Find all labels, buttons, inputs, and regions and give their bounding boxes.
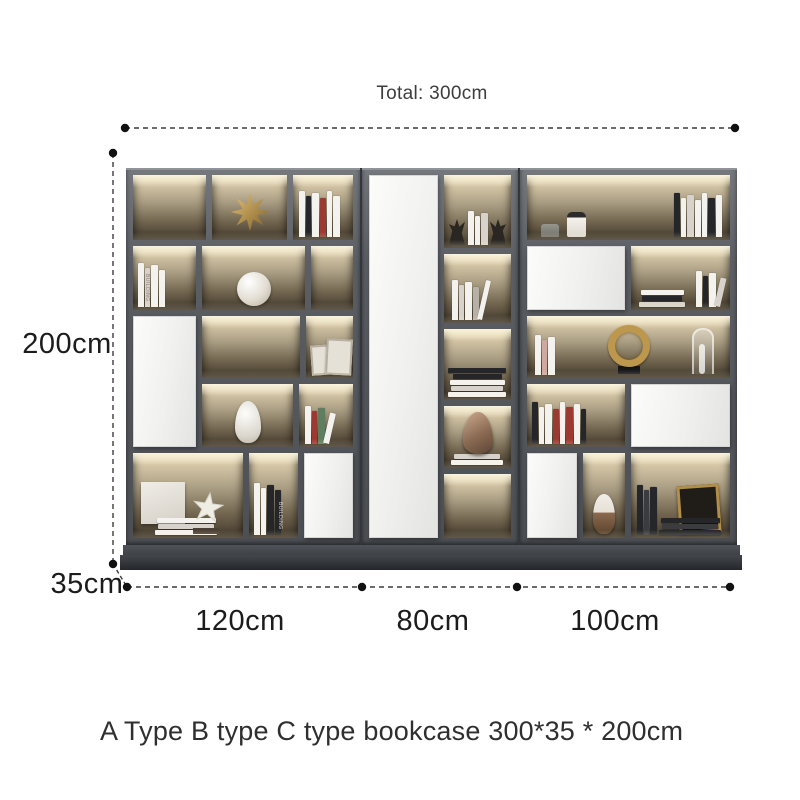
shelf-cell-books — [444, 254, 511, 323]
books — [637, 485, 657, 535]
shelf-cell-starfish — [133, 453, 243, 538]
section-b-width-label: 80cm — [358, 605, 508, 638]
shelf-cell-book-stack — [444, 329, 511, 400]
shelf-cell-ornament — [212, 175, 287, 240]
book-stack — [448, 367, 506, 397]
total-width-label: Total: 300cm — [332, 83, 532, 105]
books — [468, 211, 488, 245]
books — [674, 193, 722, 237]
gold-knot-ornament — [608, 325, 650, 367]
shelf-cell-vase — [202, 384, 293, 447]
shelf-cell-books — [299, 384, 353, 447]
ornament-base — [618, 366, 640, 374]
shelf-cell-books — [527, 384, 625, 447]
height-label: 200cm — [20, 328, 114, 361]
gold-star-ornament-icon — [225, 187, 275, 237]
bookcase: BUILDING — [126, 168, 737, 545]
shelf-cell-books: BUILDING — [249, 453, 298, 538]
shelf-cell-ornaments — [527, 316, 730, 378]
shelf-cell-frames — [306, 316, 353, 378]
brown-vase — [463, 412, 493, 454]
starfish-ornament-icon — [185, 486, 231, 532]
shelf-cell-ornament — [202, 246, 305, 310]
white-vase — [235, 401, 261, 443]
shelf-cell-empty — [133, 175, 206, 240]
gray-jar — [541, 224, 559, 237]
shelf-cell-books — [293, 175, 353, 240]
bookcase-section-c — [520, 168, 737, 545]
section-a-width-label: 120cm — [165, 605, 315, 638]
book-stack — [659, 517, 721, 535]
antler-bookend — [490, 219, 506, 245]
shelf-cell-empty — [444, 474, 511, 538]
books — [299, 191, 340, 237]
books — [138, 263, 165, 307]
glass-dome-ornament — [692, 328, 714, 374]
bookcase-base — [123, 545, 740, 555]
shelf-cell-books-frame — [631, 453, 730, 538]
cabinet-door — [631, 384, 730, 447]
white-canister — [567, 212, 586, 237]
section-c-width-label: 100cm — [540, 605, 690, 638]
depth-label: 35cm — [40, 568, 134, 601]
shelf-cell-jars-books — [527, 175, 730, 240]
antler-bookend — [449, 219, 465, 245]
coral-ball-ornament — [237, 272, 271, 306]
two-tone-vase — [593, 494, 615, 534]
bookcase-baseboard — [120, 555, 742, 570]
books — [452, 280, 482, 320]
book-stack — [639, 289, 685, 307]
cabinet-door — [133, 316, 196, 447]
books — [535, 335, 555, 375]
cabinet-door — [527, 246, 625, 310]
bookcase-dimension-diagram: Total: 300cm 200cm 35cm 120cm 80cm 100cm… — [0, 0, 800, 800]
books — [305, 406, 329, 444]
shelf-cell-books: BUILDING — [133, 246, 196, 310]
shelf-cell-vase — [444, 406, 511, 468]
bookcase-section-b — [362, 168, 518, 545]
shelf-cell-empty — [202, 316, 300, 378]
cabinet-door — [527, 453, 577, 538]
book-spine-text: BUILDING — [277, 502, 283, 530]
picture-frame — [325, 338, 353, 375]
book-stack — [451, 453, 503, 465]
tall-cabinet-door — [369, 175, 438, 538]
product-caption: A Type B type C type bookcase 300*35 * 2… — [100, 716, 683, 747]
shelf-cell-books — [631, 246, 730, 310]
book-spine-text: BUILDING — [144, 274, 150, 302]
shelf-cell-empty — [311, 246, 353, 310]
books — [532, 402, 586, 444]
cabinet-door — [304, 453, 353, 538]
bookcase-section-a: BUILDING — [126, 168, 360, 545]
shelf-cell-vase — [583, 453, 625, 538]
books — [696, 271, 720, 307]
shelf-cell-bookends — [444, 175, 511, 248]
